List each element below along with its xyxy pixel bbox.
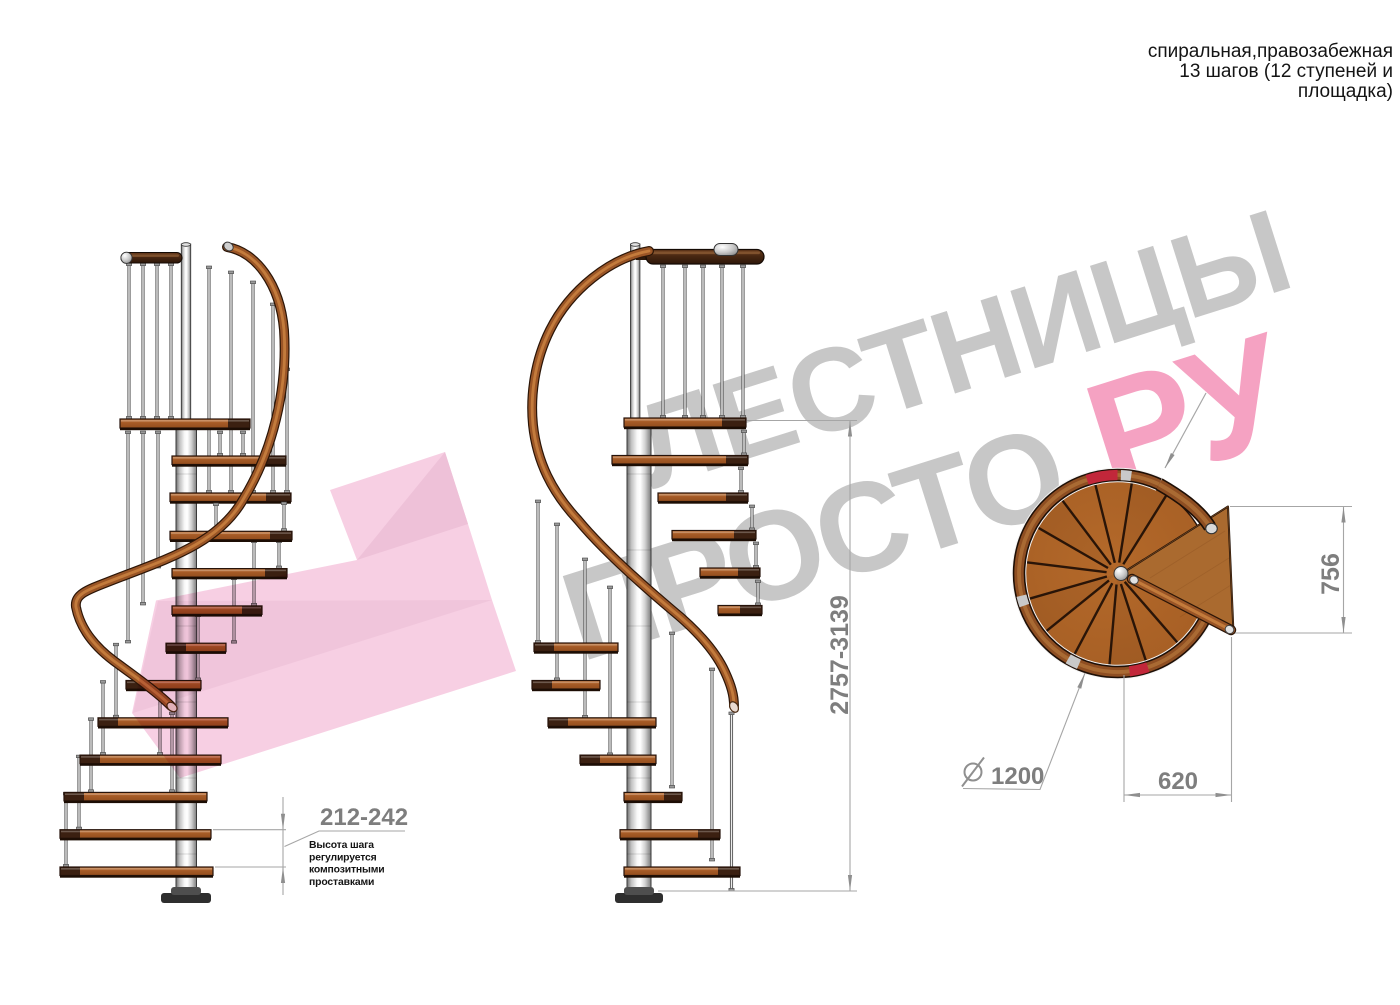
svg-text:13 шагов (12 ступеней и: 13 шагов (12 ступеней и: [1179, 61, 1393, 82]
svg-text:620: 620: [1158, 768, 1198, 795]
svg-text:Высота шага: Высота шага: [309, 840, 374, 851]
svg-text:площадка): площадка): [1298, 81, 1393, 102]
svg-text:2757-3139: 2757-3139: [826, 595, 854, 715]
svg-text:регулируется: регулируется: [309, 852, 377, 863]
svg-text:композитными: композитными: [309, 865, 385, 876]
svg-text:проставками: проставками: [309, 877, 374, 888]
svg-text:1200: 1200: [991, 763, 1044, 790]
svg-text:756: 756: [1317, 553, 1345, 595]
svg-text:212-242: 212-242: [320, 804, 408, 831]
svg-text:спиральная,правозабежная: спиральная,правозабежная: [1148, 41, 1393, 62]
